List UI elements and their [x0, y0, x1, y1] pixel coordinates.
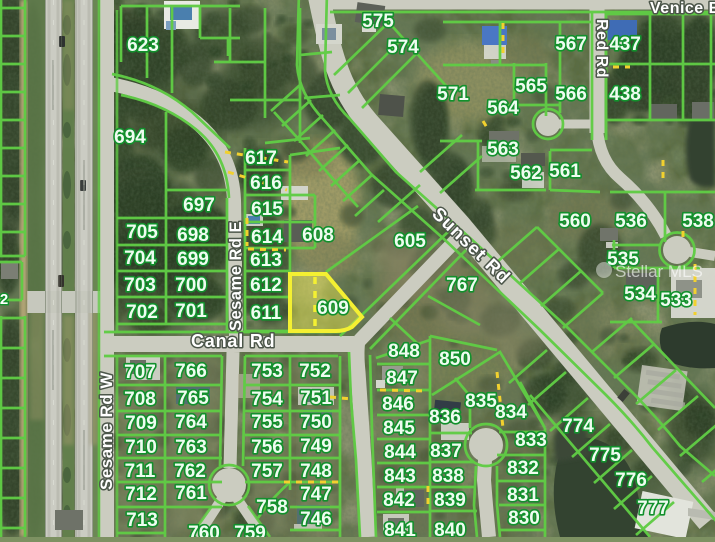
- svg-text:703: 703: [124, 275, 156, 296]
- svg-text:561: 561: [549, 161, 581, 182]
- svg-text:704: 704: [124, 248, 156, 269]
- svg-text:702: 702: [126, 302, 158, 323]
- svg-text:438: 438: [609, 84, 641, 105]
- svg-text:833: 833: [515, 430, 547, 451]
- svg-text:830: 830: [508, 508, 540, 529]
- svg-text:832: 832: [507, 458, 539, 479]
- svg-text:564: 564: [487, 98, 519, 119]
- svg-text:536: 536: [615, 211, 647, 232]
- svg-text:759: 759: [234, 523, 266, 537]
- svg-text:837: 837: [430, 441, 462, 462]
- svg-text:538: 538: [682, 211, 714, 232]
- svg-text:844: 844: [384, 442, 416, 463]
- svg-text:614: 614: [251, 227, 283, 248]
- svg-text:533: 533: [660, 290, 692, 311]
- svg-text:834: 834: [495, 402, 527, 423]
- svg-text:835: 835: [465, 391, 497, 412]
- svg-text:609: 609: [317, 298, 349, 319]
- svg-text:775: 775: [589, 445, 621, 466]
- svg-text:765: 765: [177, 388, 209, 409]
- svg-text:747: 747: [300, 484, 332, 505]
- svg-text:753: 753: [251, 361, 283, 382]
- svg-text:560: 560: [559, 211, 591, 232]
- svg-text:836: 836: [429, 407, 461, 428]
- svg-text:761: 761: [175, 483, 207, 504]
- svg-text:575: 575: [362, 11, 394, 32]
- svg-text:751: 751: [300, 388, 332, 409]
- svg-text:774: 774: [562, 416, 594, 437]
- svg-text:574: 574: [387, 37, 419, 58]
- svg-text:608: 608: [302, 225, 334, 246]
- svg-text:749: 749: [300, 436, 332, 457]
- svg-text:605: 605: [394, 231, 426, 252]
- svg-text:845: 845: [383, 418, 415, 439]
- svg-text:623: 623: [127, 35, 159, 56]
- svg-text:711: 711: [125, 461, 156, 482]
- svg-text:710: 710: [125, 437, 157, 458]
- svg-text:Canal Rd: Canal Rd: [191, 331, 275, 351]
- svg-text:567: 567: [555, 34, 587, 55]
- svg-text:Venice E: Venice E: [650, 0, 715, 17]
- svg-text:760: 760: [188, 523, 220, 537]
- svg-text:709: 709: [125, 413, 157, 434]
- svg-text:437: 437: [609, 34, 641, 55]
- svg-text:847: 847: [386, 368, 418, 389]
- svg-text:Red Rd: Red Rd: [593, 19, 610, 78]
- svg-text:746: 746: [300, 509, 332, 530]
- svg-text:831: 831: [507, 485, 539, 506]
- svg-text:756: 756: [251, 437, 283, 458]
- svg-text:563: 563: [487, 139, 519, 160]
- svg-text:766: 766: [175, 361, 207, 382]
- svg-text:701: 701: [175, 301, 207, 322]
- svg-text:Sesame Rd W: Sesame Rd W: [97, 372, 116, 490]
- svg-text:846: 846: [382, 394, 414, 415]
- svg-text:699: 699: [177, 249, 209, 270]
- svg-text:713: 713: [126, 510, 158, 531]
- svg-text:838: 838: [432, 466, 464, 487]
- svg-text:763: 763: [175, 437, 207, 458]
- svg-text:839: 839: [434, 490, 466, 511]
- svg-text:767: 767: [446, 275, 478, 296]
- svg-text:2: 2: [0, 291, 8, 308]
- svg-text:777: 777: [637, 498, 669, 519]
- svg-text:Stellar MLS: Stellar MLS: [615, 262, 703, 281]
- svg-text:776: 776: [615, 470, 647, 491]
- svg-text:755: 755: [251, 412, 283, 433]
- svg-text:757: 757: [251, 461, 283, 482]
- svg-text:764: 764: [175, 412, 207, 433]
- svg-text:Sesame Rd E: Sesame Rd E: [227, 221, 245, 331]
- svg-text:566: 566: [555, 84, 587, 105]
- svg-text:842: 842: [383, 490, 415, 511]
- svg-text:758: 758: [256, 497, 288, 518]
- svg-text:611: 611: [251, 303, 282, 324]
- svg-text:848: 848: [388, 341, 420, 362]
- svg-text:754: 754: [251, 389, 283, 410]
- svg-text:750: 750: [300, 412, 332, 433]
- svg-text:705: 705: [126, 222, 158, 243]
- svg-text:565: 565: [515, 76, 547, 97]
- svg-text:752: 752: [299, 361, 331, 382]
- svg-text:698: 698: [177, 225, 209, 246]
- svg-text:748: 748: [300, 461, 332, 482]
- svg-text:712: 712: [125, 484, 157, 505]
- svg-text:707: 707: [124, 362, 156, 383]
- svg-text:571: 571: [437, 84, 469, 105]
- svg-text:615: 615: [251, 199, 283, 220]
- svg-text:843: 843: [384, 466, 416, 487]
- svg-text:616: 616: [250, 173, 282, 194]
- svg-text:534: 534: [624, 284, 656, 305]
- svg-text:850: 850: [439, 349, 471, 370]
- svg-text:612: 612: [250, 275, 282, 296]
- svg-text:840: 840: [434, 520, 466, 537]
- svg-text:708: 708: [124, 389, 156, 410]
- svg-text:762: 762: [174, 461, 206, 482]
- svg-text:700: 700: [175, 275, 207, 296]
- svg-text:562: 562: [510, 163, 542, 184]
- svg-text:694: 694: [114, 127, 146, 148]
- svg-text:841: 841: [384, 520, 416, 537]
- svg-text:697: 697: [183, 195, 215, 216]
- svg-text:613: 613: [250, 250, 282, 271]
- svg-text:617: 617: [245, 148, 277, 169]
